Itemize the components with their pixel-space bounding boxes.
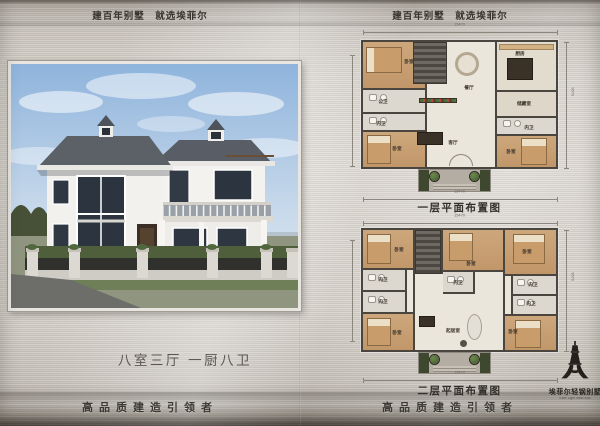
- sink: [514, 120, 521, 127]
- wall: [363, 268, 415, 270]
- plan1-dimension-bottom: 15470: [395, 190, 523, 194]
- wall: [511, 276, 513, 316]
- plan1-dimension-side: 9570: [570, 87, 574, 96]
- wall: [495, 134, 556, 136]
- room-label: 厨房: [515, 52, 524, 57]
- potted-plant: [470, 355, 479, 364]
- bed: [515, 320, 541, 348]
- room-label: 储藏室: [517, 102, 531, 107]
- potted-plant: [430, 355, 439, 364]
- plan1-caption: 一层平面布置图: [361, 200, 558, 215]
- entry-door: [449, 154, 461, 166]
- room-label: 内卫: [528, 283, 537, 288]
- toilet: [369, 94, 377, 101]
- right-page-footer: 高品质建造引领者: [300, 399, 600, 415]
- room-label: 内卫: [376, 122, 385, 127]
- brochure-page: 建百年别墅 就选埃菲尔 建百年别墅 就选埃菲尔: [0, 0, 600, 426]
- room-label: 内卫: [524, 126, 533, 131]
- wall: [503, 230, 505, 350]
- plan2-dimension-top: 15470: [395, 214, 523, 218]
- wall: [405, 270, 407, 312]
- room-label: 餐厅: [464, 86, 473, 91]
- room-label: 公卫: [378, 100, 387, 105]
- wall: [505, 314, 556, 316]
- left-page-header: 建百年别墅 就选埃菲尔: [0, 8, 300, 22]
- plan2-caption: 二层平面布置图: [361, 383, 558, 398]
- bathtub: [467, 314, 482, 340]
- right-page-header: 建百年别墅 就选埃菲尔: [300, 8, 600, 22]
- planter-box: [419, 353, 429, 373]
- bed: [367, 234, 391, 264]
- brand-name: 埃菲尔轻钢别墅: [541, 387, 600, 397]
- bed: [366, 47, 402, 73]
- wall: [441, 230, 443, 274]
- plan2-dimension-line-right: [564, 230, 569, 352]
- wall: [363, 312, 415, 314]
- toilet: [503, 120, 511, 127]
- sitting-table: [419, 316, 435, 327]
- toilet: [368, 296, 376, 303]
- dining-table: [455, 52, 479, 76]
- stairs: [413, 42, 447, 84]
- wall: [495, 90, 556, 92]
- room-label: 内卫: [378, 300, 387, 305]
- toilet: [517, 279, 525, 286]
- brand-logo: 埃菲尔轻钢别墅 Eiffel Light Steel Villa: [541, 340, 600, 403]
- plan2-dimension-bottom: 15470: [395, 371, 523, 375]
- fence: [25, 244, 298, 280]
- planter-box: [480, 170, 490, 191]
- room-label: 卧室: [392, 147, 401, 152]
- room-label: 内卫: [378, 278, 387, 283]
- room-label: 卧室: [394, 248, 403, 253]
- wall: [473, 272, 475, 294]
- wall: [363, 290, 407, 292]
- entry-door: [461, 154, 473, 166]
- kitchen-counter: [499, 44, 554, 50]
- wall: [363, 88, 427, 90]
- room-label: 客厅: [448, 141, 457, 146]
- room-label: 卧室: [522, 250, 531, 255]
- plan1-dimension-top: 15470: [395, 23, 523, 27]
- porch: [418, 169, 491, 192]
- left-page-footer: 高品质建造引领者: [0, 399, 300, 415]
- kitchen-table: [507, 58, 533, 80]
- bed: [367, 135, 391, 164]
- bed: [367, 318, 391, 346]
- room-label: 卧室: [404, 60, 413, 65]
- plan2-dimension-line-left: [350, 240, 355, 342]
- bed: [521, 138, 547, 165]
- potted-plant: [470, 172, 479, 181]
- toilet: [368, 274, 376, 281]
- room-label: 内卫: [526, 302, 535, 307]
- stool: [460, 340, 467, 347]
- wall: [363, 112, 427, 114]
- villa-photo-frame: [8, 61, 301, 311]
- planter-box: [480, 353, 490, 373]
- toilet: [517, 299, 525, 306]
- room-label: 卧室: [466, 262, 475, 267]
- wall: [495, 42, 497, 167]
- eiffel-tower-icon: [558, 340, 592, 381]
- room-label: 卧室: [392, 331, 401, 336]
- wall: [495, 116, 556, 118]
- floor-plan-2: 卧室 卧室 卧室 内卫 内卫 内卫 内卫 内卫 卧室 卧室 起居室: [361, 228, 558, 352]
- villa-photo: [11, 64, 298, 308]
- planter-box: [419, 170, 429, 191]
- room-label: 起居室: [446, 329, 460, 334]
- living-table: [417, 132, 443, 145]
- floor-plan-1: 卧室 公卫 内卫 卧室 餐厅 客厅 厨房 储藏室 内卫 卧室: [361, 40, 558, 169]
- wall: [513, 294, 556, 296]
- stairs: [415, 230, 441, 274]
- bed: [449, 233, 473, 261]
- feature-text: 八室三厅 一厨八卫: [55, 349, 315, 369]
- plan1-dimension-line-left: [350, 55, 355, 167]
- plan1-dimension-line-top: [363, 30, 558, 35]
- room-label: 内卫: [453, 281, 462, 286]
- room-label: 卧室: [508, 330, 517, 335]
- wall: [443, 292, 475, 294]
- potted-plant: [430, 172, 439, 181]
- room-label: 卧室: [506, 150, 515, 155]
- flower-cabinet: [419, 98, 457, 103]
- plan1-dimension-line-right: [564, 42, 569, 169]
- plan2-dimension-side: 9570: [570, 272, 574, 281]
- plan2-dimension-line-top: [363, 221, 558, 226]
